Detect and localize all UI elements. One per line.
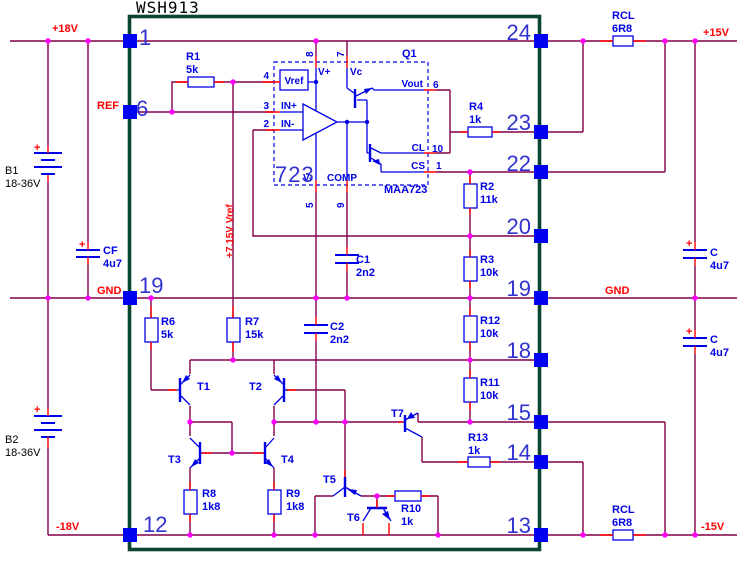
label-b2: B2 (5, 434, 18, 446)
label-r1-value: 5k (186, 64, 199, 76)
labels: WSH913 +18V REF GND -18V +15V GND -15V +… (5, 0, 730, 538)
resistor-r1[interactable] (188, 77, 214, 87)
label-r11: R11 (480, 377, 500, 389)
pin-number-14: 14 (507, 440, 531, 465)
label-r8: R8 (202, 488, 216, 500)
label-ic-cs: CS (411, 161, 425, 172)
pin-number-15: 15 (507, 400, 531, 425)
label-t1: T1 (197, 381, 210, 393)
icpin-3: 3 (263, 101, 269, 112)
label-rcl-top: RCL (612, 10, 635, 22)
icpin-9: 9 (336, 202, 347, 208)
icpin-10: 10 (432, 144, 444, 155)
pin-number-13: 13 (507, 513, 531, 538)
label-r10: R10 (401, 503, 421, 515)
resistor-r8[interactable] (184, 490, 197, 514)
resistor-r4[interactable] (468, 127, 492, 137)
resistor-r2[interactable] (464, 184, 477, 208)
pad-pin-13[interactable] (534, 528, 548, 542)
label-r6-value: 5k (161, 329, 174, 341)
module-outline[interactable] (130, 17, 540, 550)
label-c1-value: 2n2 (356, 267, 375, 279)
resistor-r9[interactable] (268, 490, 281, 514)
label-vref-rail: +7.15V Vref (225, 204, 236, 258)
label-c-top-value: 4u7 (710, 260, 729, 272)
label-ref: REF (97, 100, 119, 112)
pin-number-23: 23 (507, 110, 531, 135)
label-r9-value: 1k8 (286, 501, 304, 513)
label-r4: R4 (469, 101, 484, 113)
label-t6: T6 (347, 512, 360, 524)
pin-number-19-right: 19 (507, 276, 531, 301)
label-b1: B1 (5, 165, 18, 177)
label-r7-value: 15k (245, 329, 264, 341)
label-ic-part: MAA723 (384, 184, 427, 196)
label-c2-value: 2n2 (330, 334, 349, 346)
opamp-triangle (303, 104, 337, 140)
battery-b2[interactable] (34, 416, 62, 437)
label-r12: R12 (480, 315, 500, 327)
label-c-top-plus: + (686, 238, 692, 250)
label-r2-value: 11k (480, 194, 499, 206)
label-rcl-top-value: 6R8 (612, 23, 632, 35)
label-minus15v: -15V (701, 521, 725, 533)
label-b2-value: 18-36V (5, 447, 41, 459)
label-r10-value: 1k (401, 516, 414, 528)
label-gnd-left: GND (97, 285, 122, 297)
resistor-r7[interactable] (227, 318, 240, 342)
label-r4-value: 1k (469, 114, 482, 126)
label-cf: CF (103, 245, 118, 257)
label-c2: C2 (330, 321, 344, 333)
resistor-r3[interactable] (464, 257, 477, 281)
label-c-bottom-value: 4u7 (710, 347, 729, 359)
icpin-5: 5 (305, 202, 316, 208)
icpin-2: 2 (263, 119, 269, 130)
label-r13: R13 (468, 432, 488, 444)
label-rcl-bottom-value: 6R8 (612, 517, 632, 529)
resistor-r6[interactable] (145, 318, 158, 342)
label-plus18v: +18V (52, 23, 79, 35)
label-c-bottom: C (710, 334, 718, 346)
label-b2-plus: + (34, 404, 40, 416)
q1-emitter-arrow-icon (364, 88, 372, 94)
label-r3-value: 10k (480, 267, 499, 279)
label-r7: R7 (245, 316, 259, 328)
pad-pin-24[interactable] (534, 34, 548, 48)
label-b1-value: 18-36V (5, 178, 41, 190)
icpin-4: 4 (263, 71, 269, 82)
label-ic-inplus: IN+ (281, 101, 297, 112)
label-r12-value: 10k (480, 328, 499, 340)
label-r2: R2 (480, 181, 494, 193)
label-t4: T4 (281, 454, 295, 466)
label-r8-value: 1k8 (202, 501, 220, 513)
pad-pin-19-left[interactable] (123, 291, 137, 305)
label-b1-plus: + (34, 142, 40, 154)
label-c-top: C (710, 247, 718, 259)
label-t3: T3 (168, 454, 181, 466)
pin-number-19-left: 19 (139, 273, 163, 298)
pad-pin-14[interactable] (534, 455, 548, 469)
label-ic-vc: Vc (350, 67, 363, 78)
capacitor-c-bottom[interactable] (683, 338, 707, 346)
pad-pin-1[interactable] (123, 34, 137, 48)
schematic-canvas: WSH913 +18V REF GND -18V +15V GND -15V +… (0, 0, 747, 567)
icpin-8: 8 (305, 51, 316, 57)
label-r11-value: 10k (480, 390, 499, 402)
pin-number-24: 24 (507, 20, 531, 45)
resistor-rcl-top[interactable] (613, 36, 633, 46)
label-q1: Q1 (402, 48, 417, 60)
resistor-rcl-bottom[interactable] (613, 530, 633, 540)
pad-pin-6[interactable] (123, 105, 137, 119)
page-title: WSH913 (136, 0, 200, 17)
label-r13-value: 1k (468, 445, 481, 457)
icpin-1: 1 (436, 161, 442, 172)
label-ic-cl: CL (412, 143, 425, 154)
icpin-6: 6 (433, 80, 439, 91)
pad-pin-18[interactable] (534, 353, 548, 367)
battery-b1[interactable] (34, 153, 62, 174)
pad-pin-19-right[interactable] (534, 291, 548, 305)
label-minus18v: -18V (56, 521, 80, 533)
pin-number-1: 1 (139, 25, 151, 50)
label-r9: R9 (286, 488, 300, 500)
label-ic-comp: COMP (327, 173, 357, 184)
pad-pin-20[interactable] (534, 229, 548, 243)
label-c1: C1 (356, 254, 370, 266)
capacitor-cf[interactable] (76, 250, 100, 257)
label-ic-vout: Vout (402, 79, 424, 90)
label-t7: T7 (391, 408, 404, 420)
label-ic-vplus: V+ (318, 67, 331, 78)
resistor-r13[interactable] (468, 457, 490, 467)
schematic-page: WSH913 +18V REF GND -18V +15V GND -15V +… (0, 0, 747, 567)
label-cf-plus: + (79, 239, 85, 251)
t6-arrow-icon (382, 511, 390, 520)
label-r1: R1 (186, 51, 200, 63)
label-cf-value: 4u7 (103, 258, 122, 270)
icpin-7: 7 (336, 51, 347, 57)
label-t5: T5 (323, 474, 336, 486)
pin-number-20: 20 (507, 214, 531, 239)
pin-number-18: 18 (507, 338, 531, 363)
pin-number-22: 22 (507, 151, 531, 176)
label-gnd-right: GND (605, 285, 630, 297)
resistor-r10[interactable] (395, 491, 421, 501)
t5-arrow-icon (347, 489, 357, 495)
label-ic-designator: 723 (275, 162, 315, 187)
label-t2: T2 (249, 381, 262, 393)
resistor-r12[interactable] (464, 316, 477, 342)
label-ic-inminus: IN- (281, 119, 294, 130)
label-r6: R6 (161, 316, 175, 328)
label-c-bottom-plus: + (686, 326, 692, 338)
capacitor-c2[interactable] (304, 325, 328, 333)
pin-number-12: 12 (143, 512, 167, 537)
label-r3: R3 (480, 254, 494, 266)
pad-pin-22[interactable] (534, 165, 548, 179)
label-ic-vref: Vref (285, 76, 305, 87)
pad-pin-15[interactable] (534, 415, 548, 429)
pad-pin-12[interactable] (123, 528, 137, 542)
capacitor-c-top[interactable] (683, 250, 707, 258)
pin-number-6: 6 (136, 96, 148, 121)
label-rcl-bottom: RCL (612, 504, 635, 516)
resistor-r11[interactable] (464, 378, 477, 402)
pad-pin-23[interactable] (534, 125, 548, 139)
label-plus15v: +15V (703, 27, 730, 39)
